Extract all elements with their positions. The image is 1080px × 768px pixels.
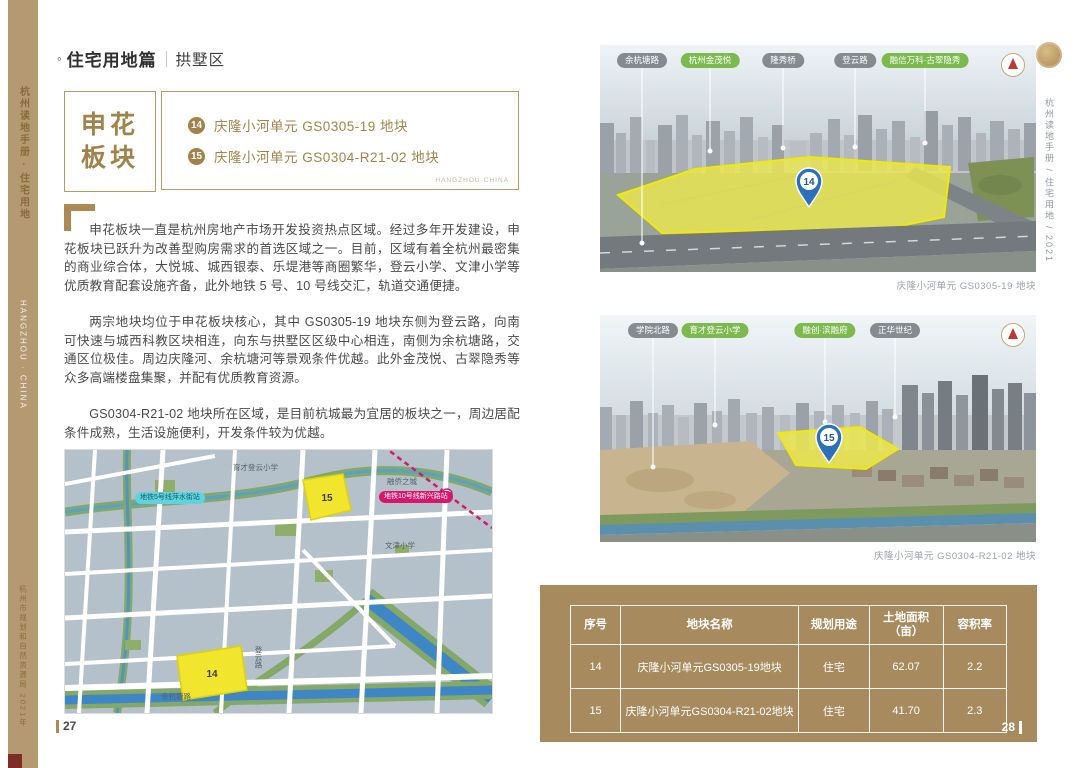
aerial-photo1-graphic: 14 bbox=[600, 45, 1036, 272]
page-number-bar bbox=[56, 720, 59, 733]
col-header-area-line1: 土地面积 bbox=[874, 611, 939, 625]
cell-name: 庆隆小河单元GS0304-R21-02地块 bbox=[621, 689, 799, 733]
map-plot-14-number: 14 bbox=[206, 669, 218, 680]
photo1-caption: 庆隆小河单元 GS0305-19 地块 bbox=[600, 278, 1036, 292]
handbook-spread: 杭州读地手册 · 住宅用地 HANGZHOU · CHINA 杭州市规划和自然资… bbox=[0, 0, 1080, 768]
plot-name-text: 庆隆小河单元 GS0304-R21-02 地块 bbox=[214, 146, 439, 166]
photo2-pill-road: 学院北路 bbox=[628, 323, 678, 338]
cell-use: 住宅 bbox=[799, 689, 870, 733]
page-number-bar bbox=[1019, 721, 1022, 734]
compass-icon bbox=[1001, 53, 1025, 77]
col-header-area: 土地面积 （亩） bbox=[869, 606, 943, 645]
plate-name-line1: 申花 bbox=[81, 109, 139, 142]
right-edge-vertical-text: 杭州读地手册 / 住宅用地 / 2021 bbox=[1043, 98, 1056, 263]
plot-list-box: 14 庆隆小河单元 GS0305-19 地块 15 庆隆小河单元 GS0304-… bbox=[161, 91, 519, 190]
photo1-pill-road: 余杭塘路 bbox=[617, 53, 667, 68]
watermark-text: HANGZHOU·CHINA bbox=[435, 177, 509, 184]
cell-far: 2.3 bbox=[943, 689, 1006, 733]
spine-subtitle: HANGZHOU · CHINA bbox=[19, 300, 28, 410]
cell-area: 62.07 bbox=[869, 645, 943, 689]
metro-line5-station-pill: 地铁5号线萍水街站 bbox=[135, 492, 205, 504]
spine-red-mark bbox=[8, 754, 22, 768]
aerial-photo-plot15: 15 学院北路 育才登云小学 融创·滨融府 正华世纪 bbox=[600, 315, 1036, 542]
map-label-wenjin: 文津小学 bbox=[385, 540, 415, 551]
map-label-rongqiao: 融侨之城 bbox=[387, 476, 417, 487]
page-number-value: 27 bbox=[63, 719, 76, 733]
page-number-value: 28 bbox=[1002, 720, 1015, 734]
col-header-far: 容积率 bbox=[943, 606, 1006, 645]
district-title-text: 拱墅区 bbox=[176, 48, 226, 70]
seal-logo bbox=[1036, 42, 1062, 68]
spine-title: 杭州读地手册 · 住宅用地 bbox=[16, 86, 31, 221]
map-label-dengyun-road: 登云路 bbox=[253, 646, 264, 669]
compass-icon bbox=[1001, 323, 1025, 347]
col-header-area-line2: （亩） bbox=[874, 625, 939, 639]
pin-15-number: 15 bbox=[823, 433, 835, 444]
cell-far: 2.2 bbox=[943, 645, 1006, 689]
col-header-use: 规划用途 bbox=[799, 606, 870, 645]
cell-no: 14 bbox=[571, 645, 621, 689]
photo1-pill-road2: 登云路 bbox=[834, 53, 876, 68]
table-row: 15 庆隆小河单元GS0304-R21-02地块 住宅 41.70 2.3 bbox=[571, 689, 1007, 733]
title-divider bbox=[166, 51, 167, 67]
body-text: 申花板块一直是杭州房地产市场开发投资热点区域。经过多年开发建设，申花板块已跃升为… bbox=[64, 221, 520, 460]
aerial-photo2-graphic: 15 bbox=[600, 315, 1036, 542]
col-header-no: 序号 bbox=[571, 606, 621, 645]
plot-list-item: 15 庆隆小河单元 GS0304-R21-02 地块 bbox=[188, 146, 518, 166]
plate-name-box: 申花 板块 bbox=[64, 91, 156, 192]
plot-summary-panel: 序号 地块名称 规划用途 土地面积 （亩） 容积率 14 庆隆小河单元GS030… bbox=[540, 585, 1037, 742]
title-bullet-icon: ◦ bbox=[57, 51, 62, 66]
cell-name: 庆隆小河单元GS0305-19地块 bbox=[621, 645, 799, 689]
photo1-pill-community: 杭州金茂悦 bbox=[681, 53, 740, 68]
photo2-caption: 庆隆小河单元 GS0304-R21-02 地块 bbox=[600, 548, 1036, 562]
plate-name-line2: 板块 bbox=[81, 142, 139, 175]
cell-use: 住宅 bbox=[799, 645, 870, 689]
spine-footer: 杭州市规划和自然资源局 2021年 bbox=[18, 585, 29, 728]
pin-14-number: 14 bbox=[803, 177, 815, 188]
cell-area: 41.70 bbox=[869, 689, 943, 733]
plot-list-item: 14 庆隆小河单元 GS0305-19 地块 bbox=[188, 115, 518, 135]
page-number-left: 27 bbox=[56, 719, 76, 733]
map-label-school: 育才登云小学 bbox=[233, 462, 278, 473]
plot-number-badge: 15 bbox=[188, 148, 205, 165]
paragraph-1: 申花板块一直是杭州房地产市场开发投资热点区域。经过多年开发建设，申花板块已跃升为… bbox=[64, 221, 520, 295]
map-label-yuhangtang-road: 余杭塘路 bbox=[161, 691, 191, 702]
location-map: 15 14 地铁5号线萍水街站 地铁10号线新兴路站 育才登云小学 融侨之城 文… bbox=[64, 449, 493, 714]
plot-name-text: 庆隆小河单元 GS0305-19 地块 bbox=[214, 115, 408, 135]
col-header-name: 地块名称 bbox=[621, 606, 799, 645]
map-plot-15-number: 15 bbox=[321, 493, 333, 504]
photo2-pill-landmark: 正华世纪 bbox=[870, 323, 920, 338]
photo1-pill-bridge: 隆秀桥 bbox=[762, 53, 804, 68]
section-title: ◦ 住宅用地篇 拱墅区 bbox=[57, 46, 225, 71]
plate-name: 申花 板块 bbox=[81, 109, 139, 174]
aerial-photo-plot14: 14 余杭塘路 杭州金茂悦 隆秀桥 登云路 融信万科·古翠隐秀 bbox=[600, 45, 1036, 272]
left-spine: 杭州读地手册 · 住宅用地 HANGZHOU · CHINA 杭州市规划和自然资… bbox=[8, 0, 38, 768]
map-graphic: 15 14 bbox=[65, 450, 492, 713]
photo2-pill-community: 融创·滨融府 bbox=[794, 323, 855, 338]
plot-summary-table: 序号 地块名称 规划用途 土地面积 （亩） 容积率 14 庆隆小河单元GS030… bbox=[570, 605, 1007, 733]
page-number-right: 28 bbox=[1002, 720, 1022, 734]
table-row: 14 庆隆小河单元GS0305-19地块 住宅 62.07 2.2 bbox=[571, 645, 1007, 689]
plot-number-badge: 14 bbox=[188, 117, 205, 134]
photo2-pill-school: 育才登云小学 bbox=[681, 323, 748, 338]
paragraph-2: 两宗地块均位于申花板块核心，其中 GS0305-19 地块东侧为登云路，向南可快… bbox=[64, 313, 520, 387]
paragraph-3: GS0304-R21-02 地块所在区域，是目前杭城最为宜居的板块之一，周边居配… bbox=[64, 405, 520, 442]
cell-no: 15 bbox=[571, 689, 621, 733]
table-header-row: 序号 地块名称 规划用途 土地面积 （亩） 容积率 bbox=[571, 606, 1007, 645]
metro-line10-station-pill: 地铁10号线新兴路站 bbox=[379, 491, 453, 503]
photo1-pill-community2: 融信万科·古翠隐秀 bbox=[882, 53, 969, 68]
section-title-text: 住宅用地篇 bbox=[67, 46, 157, 71]
